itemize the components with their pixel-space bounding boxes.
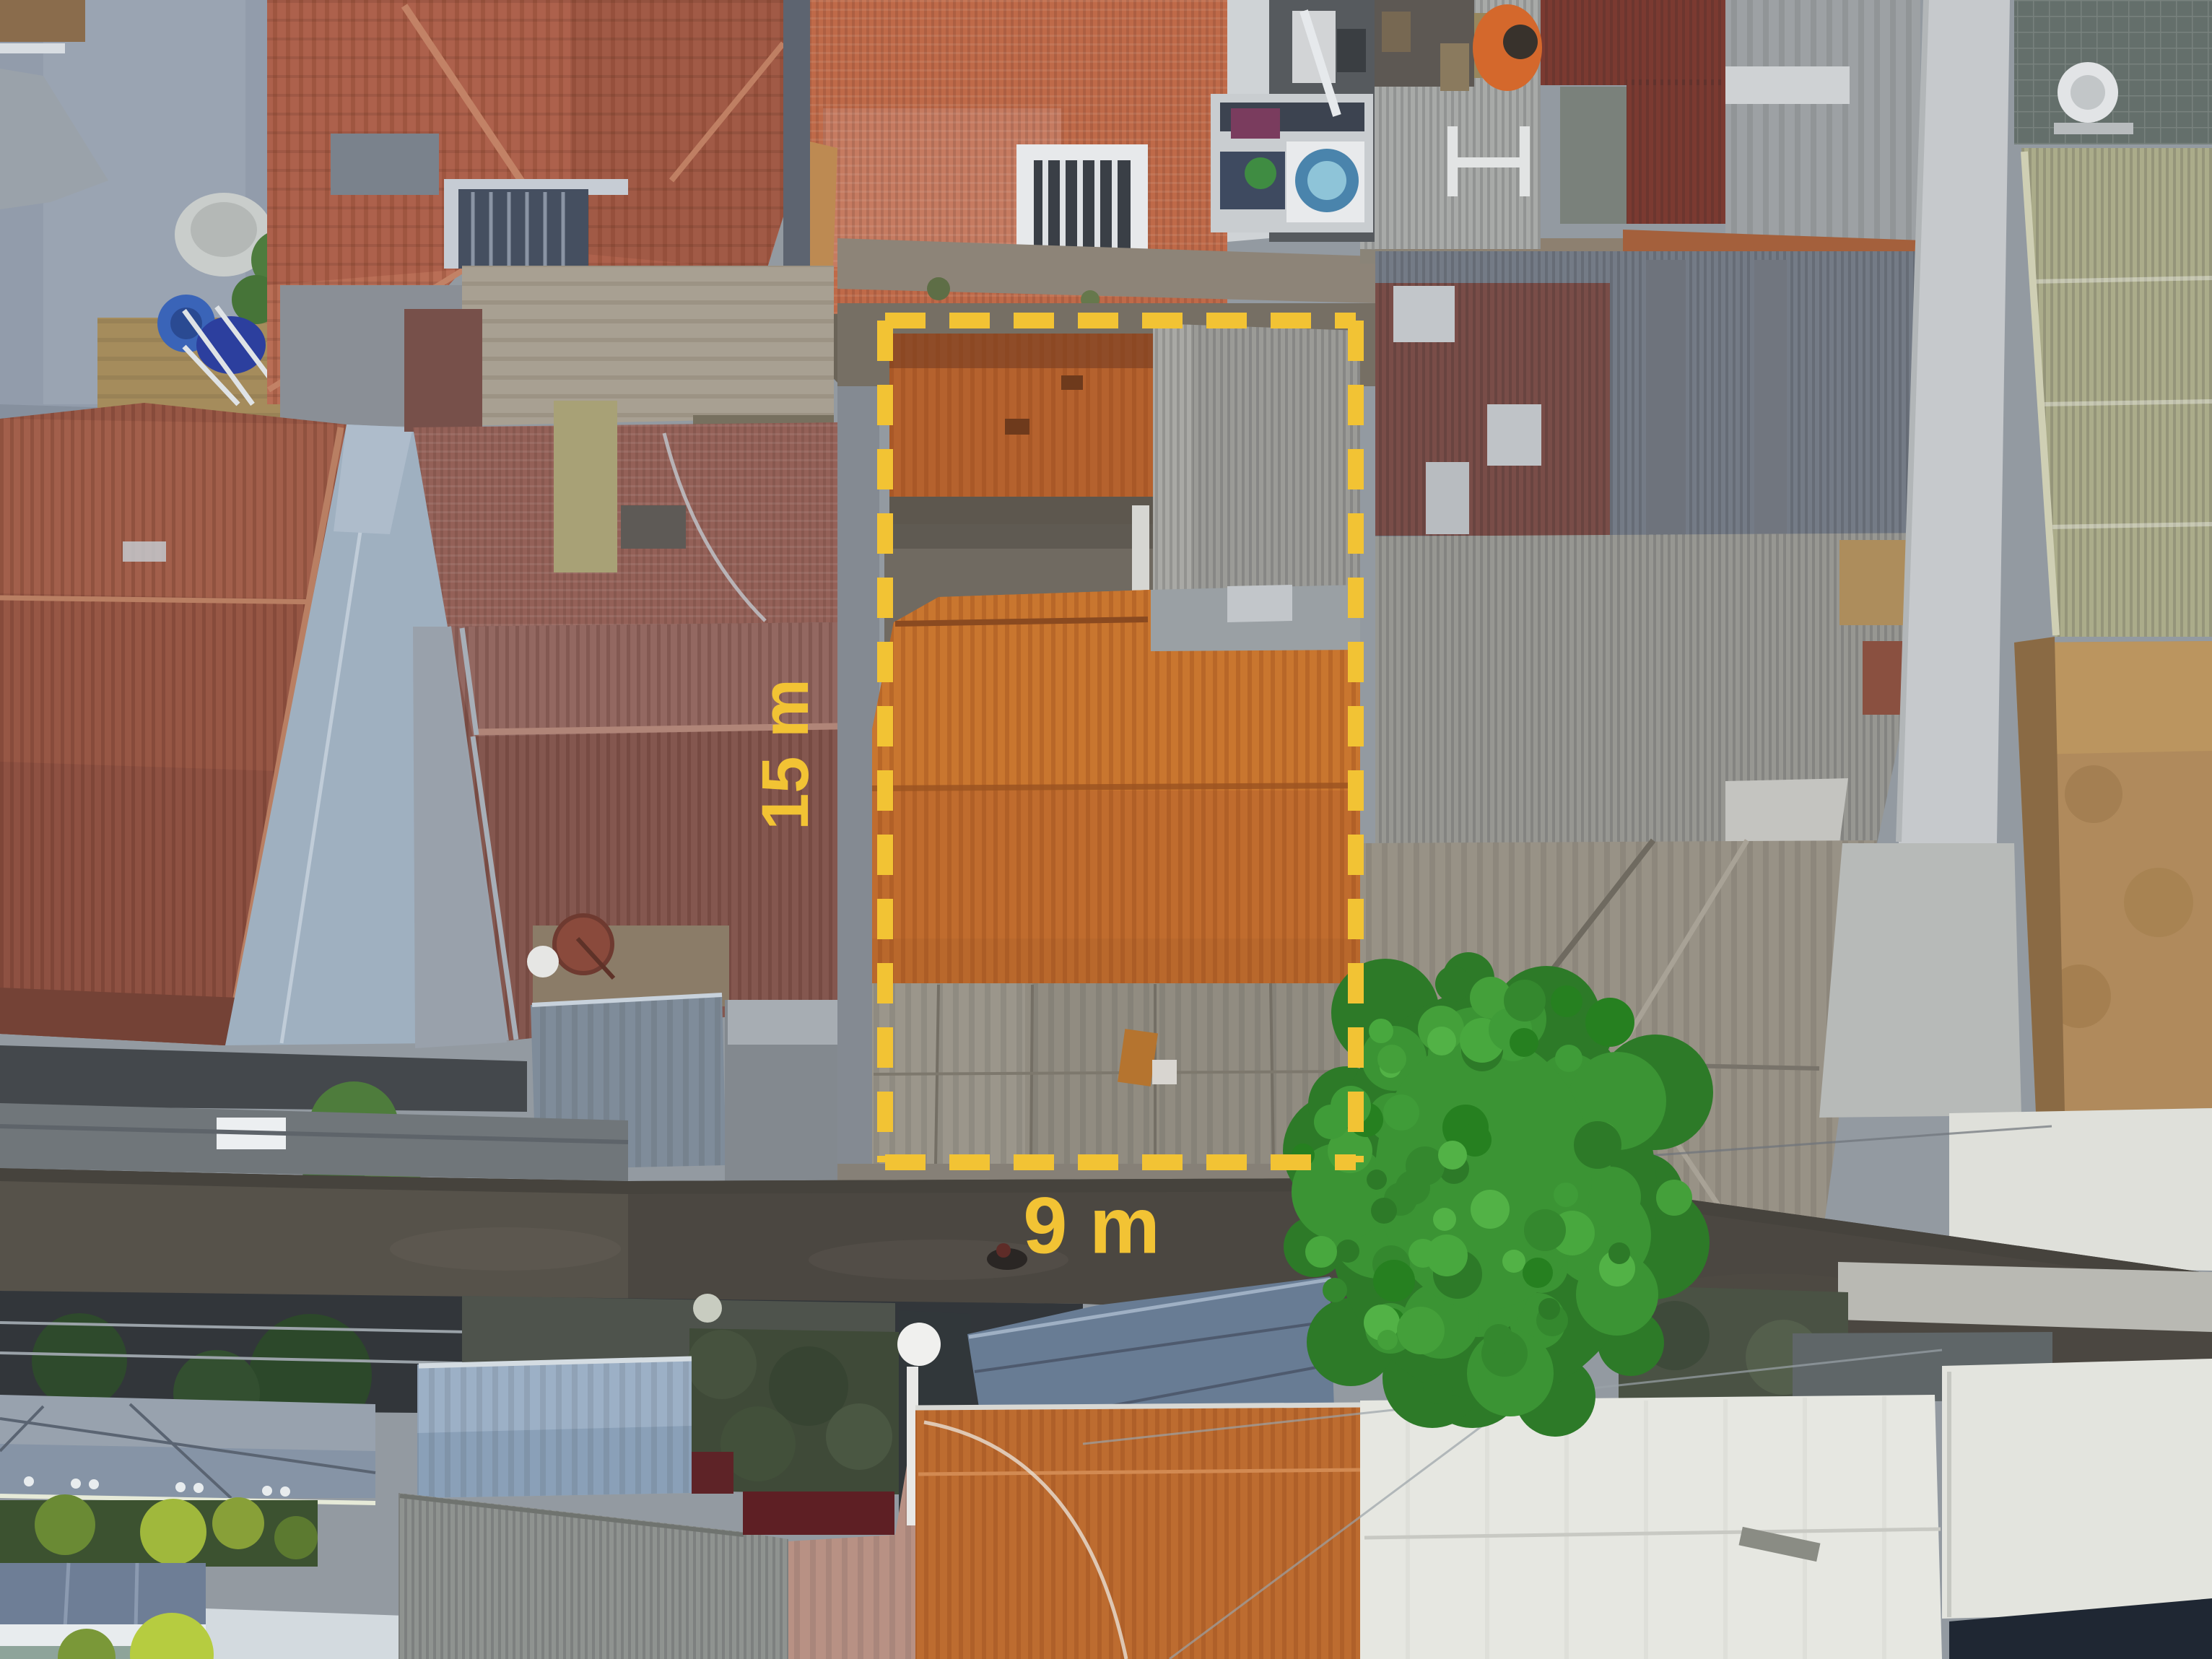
svg-text:9 m: 9 m <box>1023 1182 1160 1271</box>
svg-text:15 m: 15 m <box>749 679 822 830</box>
